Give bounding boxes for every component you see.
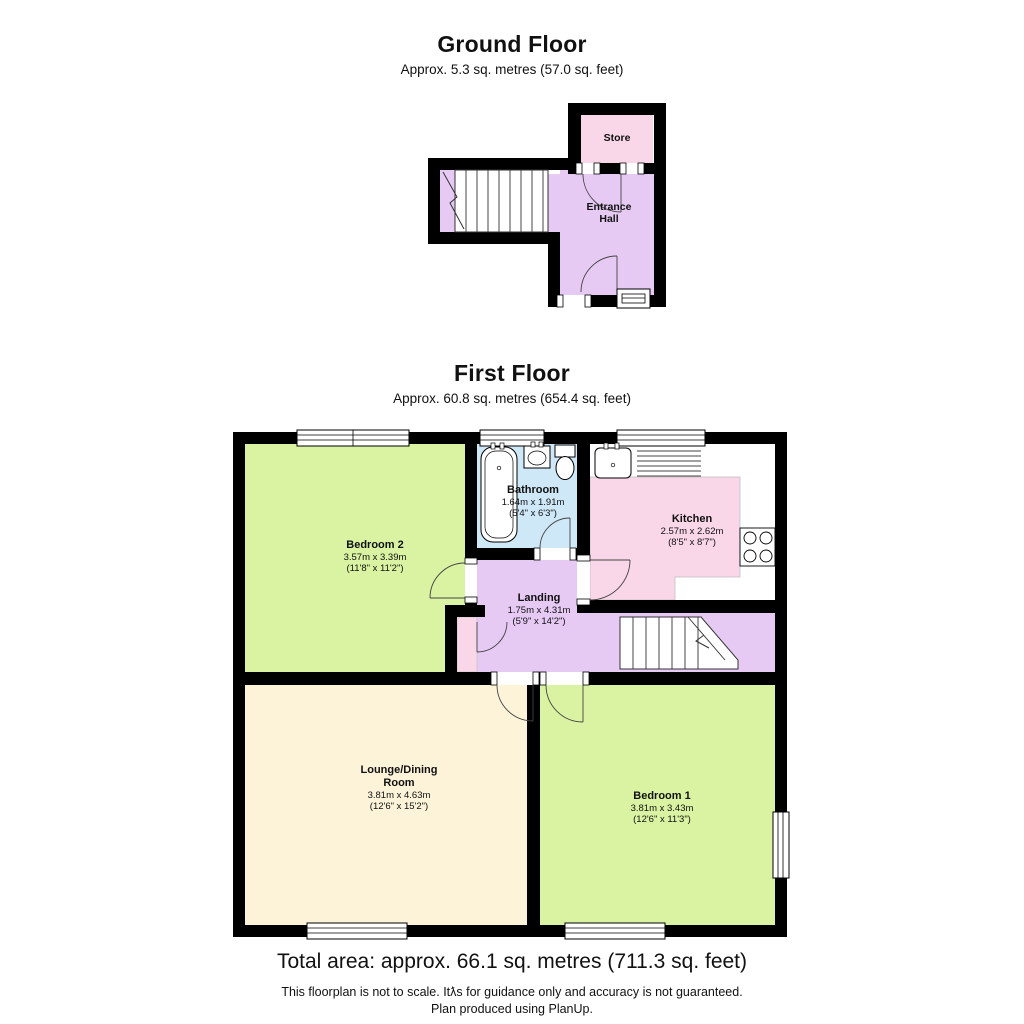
toilet bbox=[555, 445, 575, 480]
kitchen-sink bbox=[595, 443, 631, 478]
room-label-bedroom-1: Bedroom 1 3.81m x 3.43m (12'6" x 11'3") bbox=[631, 790, 694, 825]
lounge-window bbox=[307, 923, 407, 939]
room-label-lounge-dining: Lounge/Dining Room 3.81m x 4.63m (12'6" … bbox=[351, 764, 447, 812]
room-label-bathroom: Bathroom 1.64m x 1.91m (5'4" x 6'3") bbox=[502, 484, 565, 519]
front-door-step bbox=[617, 289, 650, 308]
first-floor-plan: Bedroom 2 3.57m x 3.39m (11'8" x 11'2") … bbox=[233, 432, 787, 937]
room-label-store: Store bbox=[604, 132, 631, 144]
ground-floor-subtitle: Approx. 5.3 sq. metres (57.0 sq. feet) bbox=[0, 62, 1024, 77]
room-label-kitchen: Kitchen 2.57m x 2.62m (8'5" x 8'7") bbox=[661, 513, 724, 548]
credit-text: Plan produced using PlanUp. bbox=[0, 1002, 1024, 1016]
entrance-hall-area bbox=[560, 170, 654, 295]
first-floor-subtitle: Approx. 60.8 sq. metres (654.4 sq. feet) bbox=[0, 391, 1024, 406]
hob bbox=[740, 528, 775, 566]
total-area-text: Total area: approx. 66.1 sq. metres (711… bbox=[0, 950, 1024, 974]
room-label-landing: Landing 1.75m x 4.31m (5'9" x 14'2") bbox=[508, 592, 571, 627]
first-floor-title: First Floor bbox=[0, 360, 1024, 387]
ground-floor-title: Ground Floor bbox=[0, 31, 1024, 58]
bedroom1-window bbox=[565, 923, 665, 939]
bathroom-sink bbox=[524, 442, 550, 468]
bedroom2-window bbox=[297, 430, 409, 446]
ground-floor-staircase bbox=[443, 170, 548, 232]
bedroom1-side-window bbox=[773, 812, 789, 878]
closet-area bbox=[457, 617, 477, 672]
room-label-entrance-hall: Entrance Hall bbox=[577, 201, 641, 226]
disclaimer-text: This floorplan is not to scale. Itƛs for… bbox=[0, 985, 1024, 999]
floorplan-page: Ground Floor Approx. 5.3 sq. metres (57.… bbox=[0, 0, 1024, 1024]
kitchen-window bbox=[617, 430, 705, 446]
ground-floor-plan: Store Entrance Hall bbox=[423, 96, 668, 311]
room-label-bedroom-2: Bedroom 2 3.57m x 3.39m (11'8" x 11'2") bbox=[344, 539, 407, 574]
